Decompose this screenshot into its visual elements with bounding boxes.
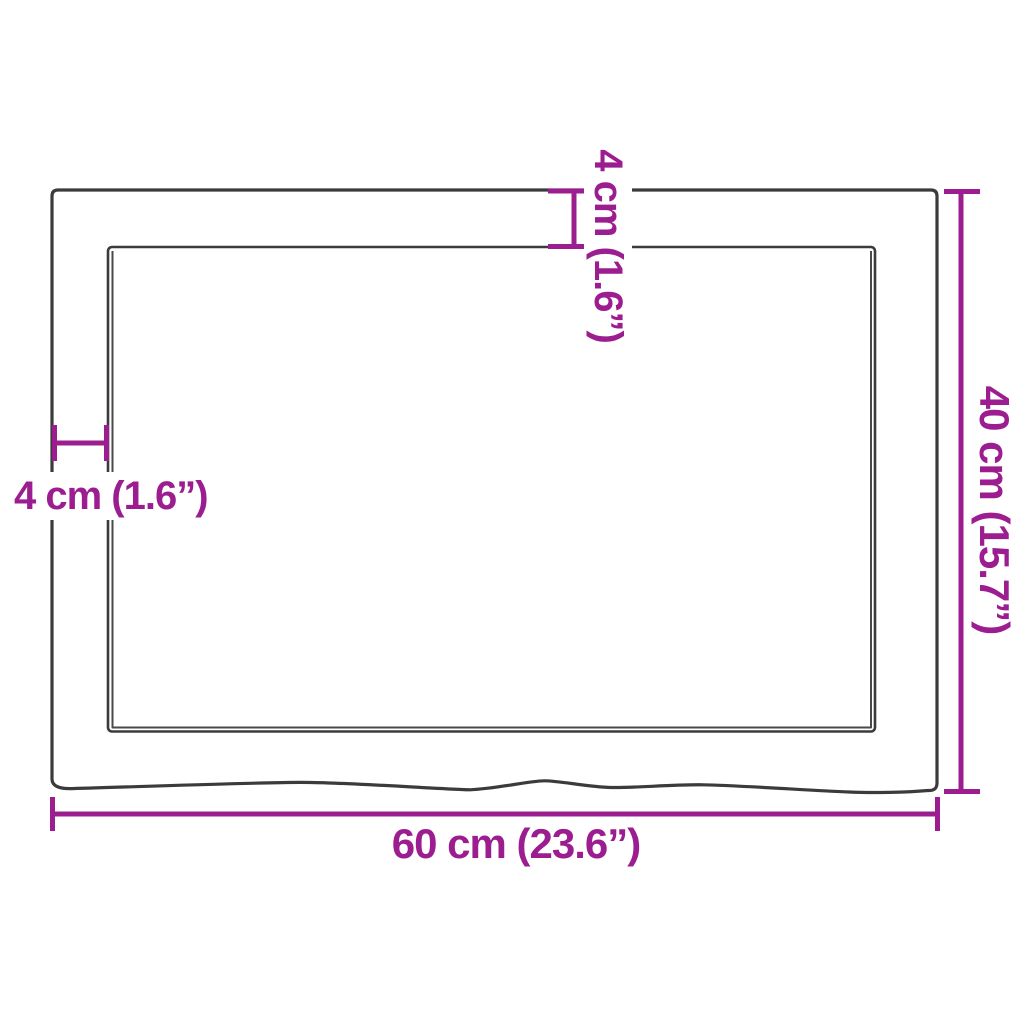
height-label: 40 cm (15.7”) [969, 380, 1019, 640]
dimension-diagram: 4 cm (1.6”) 4 cm (1.6”) 40 cm (15.7”) 60… [0, 0, 1024, 1024]
top-thickness-label: 4 cm (1.6”) [584, 143, 632, 349]
left-thickness-label: 4 cm (1.6”) [8, 472, 214, 520]
width-label: 60 cm (23.6”) [386, 819, 646, 869]
